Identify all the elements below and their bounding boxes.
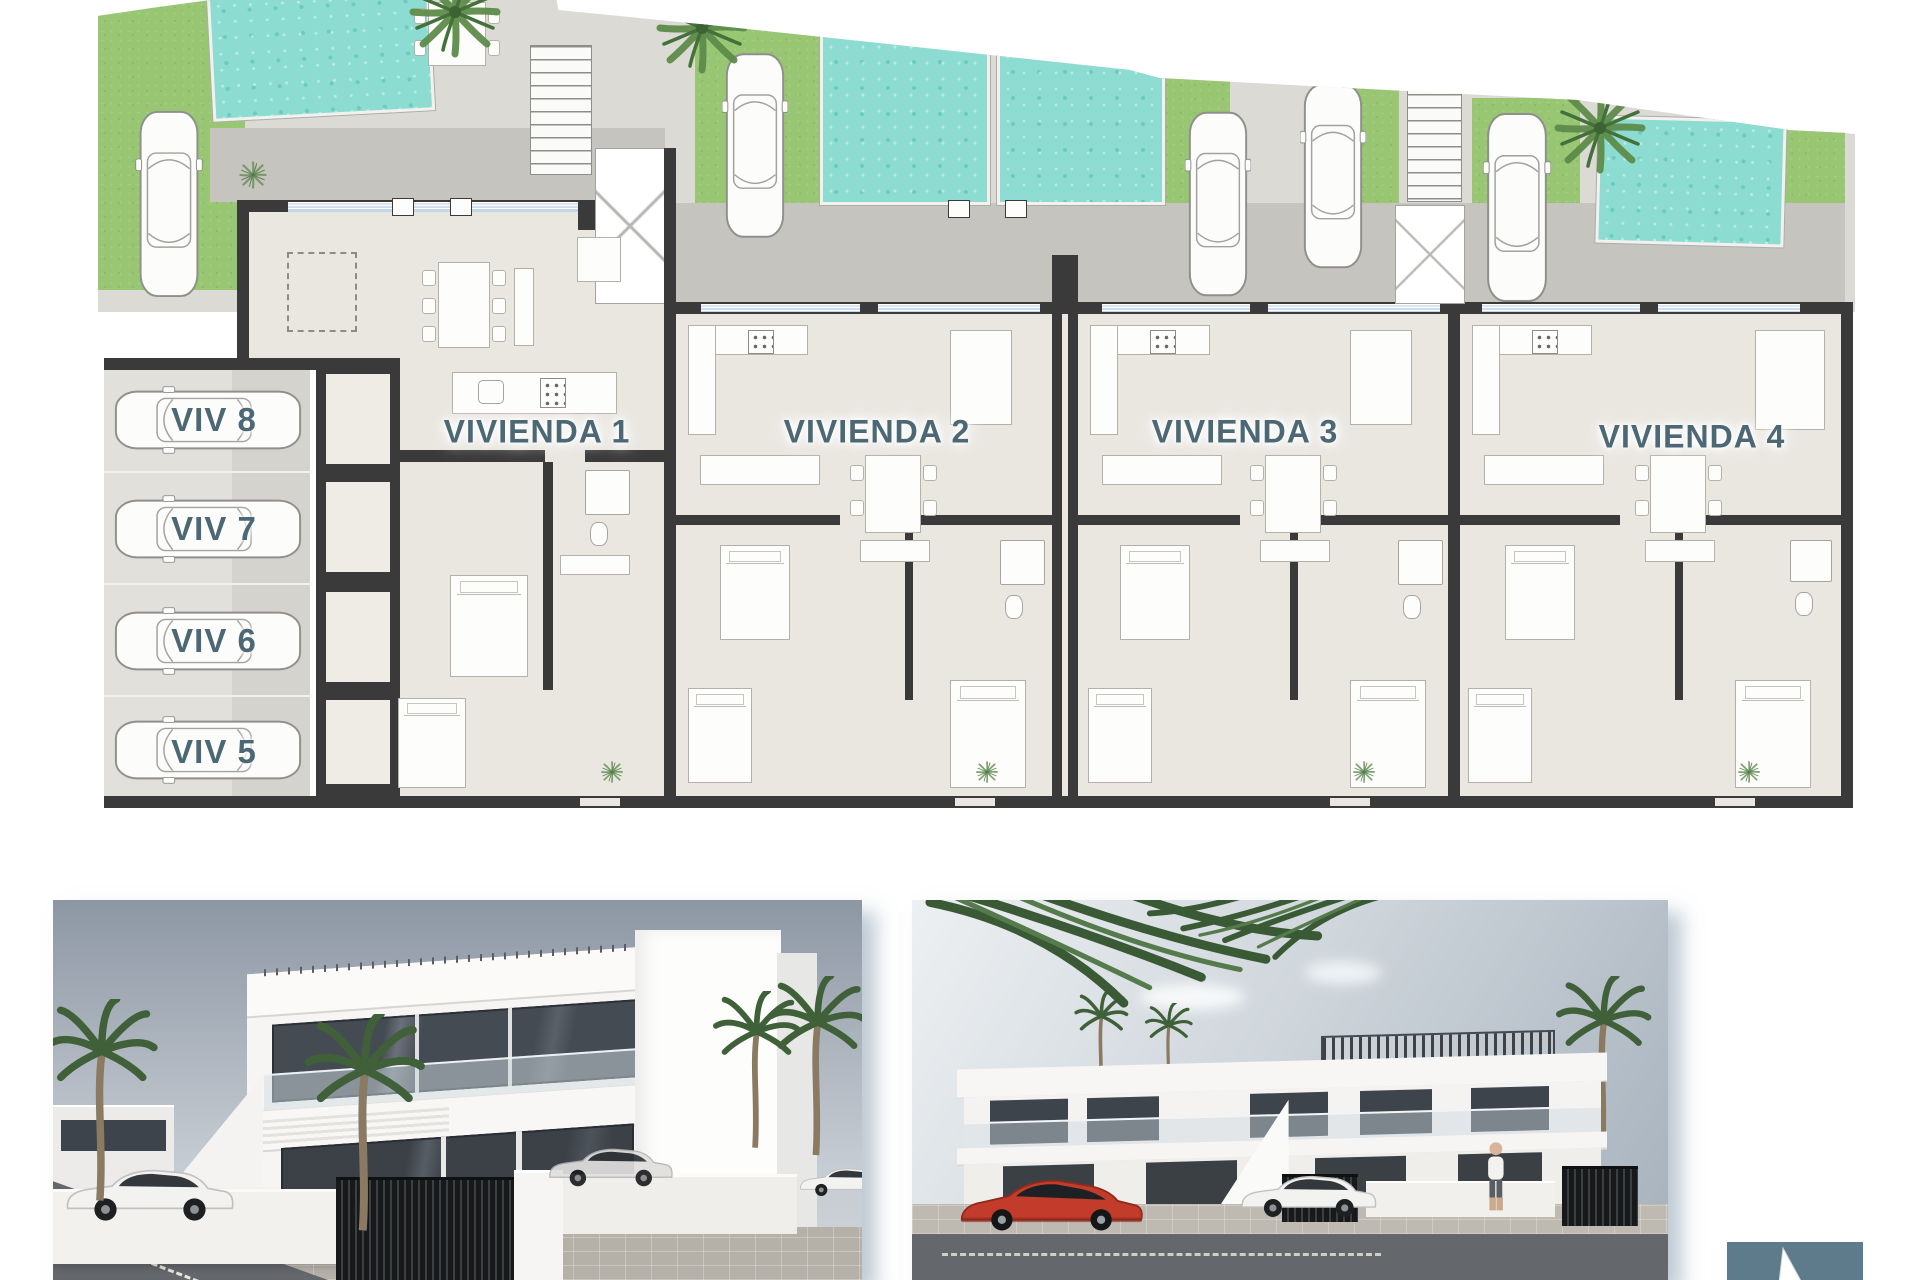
hob — [1150, 330, 1176, 354]
sofa — [950, 330, 1012, 425]
wall — [1250, 302, 1268, 314]
dining-table — [438, 262, 490, 348]
kitchen-island — [1102, 455, 1222, 485]
road-marking — [942, 1253, 1380, 1256]
slatted-fence — [1562, 1166, 1638, 1226]
person-icon — [1483, 1139, 1509, 1215]
chair — [492, 326, 506, 342]
wall-interior — [1460, 515, 1620, 525]
label-parking-viv5: VIV 5 — [171, 733, 257, 771]
storage-room — [326, 482, 390, 572]
facade-pillar — [450, 198, 472, 216]
label-parking-viv8: VIV 8 — [171, 401, 257, 439]
storage-room — [326, 700, 390, 784]
chair — [422, 298, 436, 314]
dining-table — [1265, 455, 1321, 533]
label-parking-viv6: VIV 6 — [171, 622, 257, 660]
chair — [1323, 500, 1337, 516]
chair — [850, 465, 864, 481]
fridge — [577, 237, 621, 282]
wall — [578, 200, 596, 230]
hob — [748, 330, 774, 354]
shower — [1398, 540, 1443, 585]
kitchen-counter — [1472, 325, 1500, 435]
car-side-icon — [797, 1158, 862, 1204]
palm-fronds-icon — [1124, 900, 1426, 968]
facade-pillar — [1005, 200, 1027, 218]
plant-icon — [600, 760, 624, 784]
wardrobe — [1645, 540, 1715, 562]
label-vivienda-4: VIVIENDA 4 — [1599, 419, 1786, 456]
stall-line — [104, 695, 310, 697]
parking-column: VIV 8 VIV 7 VIV 6 VIV 5 — [104, 370, 310, 796]
cursor-icon — [1775, 1244, 1815, 1280]
sofa — [1350, 330, 1412, 425]
bed — [1468, 688, 1532, 783]
render-left-photo — [53, 900, 862, 1280]
wall-divider — [664, 148, 676, 796]
chair — [422, 270, 436, 286]
shower — [1790, 540, 1832, 582]
hob — [1532, 330, 1558, 354]
chair — [1323, 465, 1337, 481]
bed — [1505, 545, 1575, 640]
chair — [1250, 465, 1264, 481]
chair — [1708, 465, 1722, 481]
chair — [492, 298, 506, 314]
facade-pillar — [392, 198, 414, 216]
plant-icon — [1352, 760, 1376, 784]
wardrobe — [1260, 540, 1330, 562]
bed — [688, 688, 752, 783]
stair-void — [1395, 205, 1465, 304]
chair — [1250, 500, 1264, 516]
shower — [585, 470, 630, 515]
chair — [1635, 465, 1649, 481]
dining-table — [865, 455, 921, 533]
wall-interior — [676, 515, 840, 525]
door-gap — [1330, 798, 1370, 806]
toilet — [1005, 595, 1023, 619]
toilet — [1403, 595, 1421, 619]
wall — [1841, 302, 1853, 808]
bed — [720, 545, 790, 640]
glazed-facade — [288, 202, 578, 212]
wardrobe — [860, 540, 930, 562]
chair — [492, 270, 506, 286]
palm-side-icon — [765, 976, 862, 1158]
kitchen-counter — [688, 325, 716, 435]
palm-side-icon — [53, 999, 166, 1204]
cursor-overlay — [1727, 1242, 1863, 1280]
wall-interior — [397, 450, 545, 462]
pergola-dashed — [287, 252, 357, 332]
chair — [1635, 500, 1649, 516]
plant-icon — [1737, 760, 1761, 784]
stall-line — [104, 471, 310, 473]
kitchen-island — [1484, 455, 1604, 485]
bed — [1120, 545, 1190, 640]
wall — [1640, 302, 1658, 314]
kitchen-counter — [1090, 325, 1118, 435]
wall-divider — [1068, 304, 1078, 796]
chair — [923, 500, 937, 516]
palm-side-icon — [296, 1014, 434, 1234]
bed — [1088, 688, 1152, 783]
label-parking-viv7: VIV 7 — [171, 510, 257, 548]
wall-interior — [543, 462, 553, 690]
door-gap — [580, 798, 620, 806]
dining-table — [1650, 455, 1706, 533]
shower — [1000, 540, 1045, 585]
road — [912, 1234, 1668, 1280]
stall-line — [104, 583, 310, 585]
toilet — [1795, 592, 1813, 616]
render-right-photo — [912, 900, 1668, 1280]
kitchen-island — [700, 455, 820, 485]
bed — [398, 698, 466, 788]
chair — [1708, 500, 1722, 516]
storage-room — [326, 592, 390, 682]
label-vivienda-3: VIVIENDA 3 — [1152, 414, 1339, 451]
wall-divider — [1448, 304, 1460, 796]
label-vivienda-2: VIVIENDA 2 — [784, 414, 971, 451]
wall — [237, 200, 249, 362]
kitchen-counter — [452, 372, 617, 414]
sheet: VIVIENDA 1 VIVIENDA 2 VIVIENDA 3 VIVIEND… — [0, 0, 1920, 1280]
wall-interior — [585, 450, 665, 462]
car-side-icon — [1237, 1166, 1381, 1223]
wall-divider — [1052, 255, 1078, 304]
chair — [923, 465, 937, 481]
chair — [850, 500, 864, 516]
sofa — [1755, 330, 1825, 430]
car-side-icon — [538, 1141, 684, 1190]
sink — [478, 380, 504, 404]
hob — [540, 378, 566, 408]
storage-room — [326, 374, 390, 464]
label-vivienda-1: VIVIENDA 1 — [444, 414, 631, 451]
wardrobe — [560, 555, 630, 575]
wall-divider — [1052, 304, 1062, 796]
glazed-facade — [1102, 304, 1440, 312]
white-wall — [1366, 1181, 1555, 1217]
door-gap — [955, 798, 995, 806]
wall — [860, 302, 878, 314]
wall-interior — [1078, 515, 1240, 525]
door-gap — [1715, 798, 1755, 806]
bed — [450, 575, 528, 677]
chair — [422, 326, 436, 342]
sideboard — [514, 268, 534, 346]
plant-icon — [975, 760, 999, 784]
toilet — [590, 522, 608, 546]
sports-car-icon — [957, 1166, 1146, 1238]
facade-pillar — [948, 200, 970, 218]
